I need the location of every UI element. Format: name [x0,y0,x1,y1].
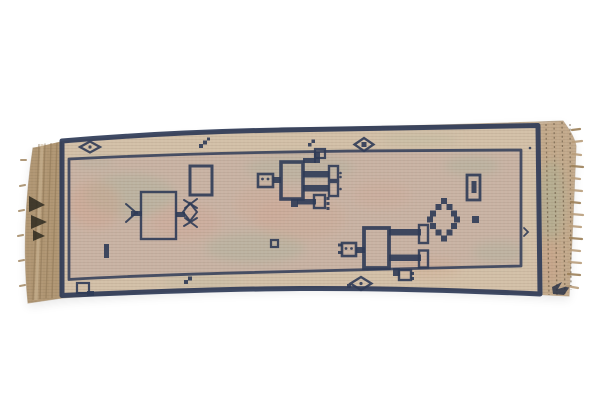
border-step [188,277,192,281]
border-dot [529,147,532,150]
fringe-strand [570,226,581,227]
diamond-square [436,204,442,210]
animal2-eye [345,247,348,250]
diamond-square [430,223,436,229]
diamond-square [441,236,447,242]
fringe-left [18,160,26,286]
fringe-strand [573,154,581,155]
fringe-strand [572,178,580,179]
fringe-strand [18,235,23,236]
border-diamond-center [362,142,367,147]
fringe-strand [572,166,583,167]
fringe-strand [569,262,581,263]
fringe-strand [570,238,582,239]
diamond-square [436,230,442,236]
weave-texture [25,121,576,303]
diamond-square [454,217,460,223]
small-square [472,216,479,223]
animal1-toe [339,176,342,179]
animal2-ear [338,251,342,254]
border-diamond-dot [88,145,91,148]
animal2-lower-arm [389,255,421,262]
animal1-toe [327,197,330,200]
animal2-toe [411,277,414,280]
border-step [308,143,312,147]
fringe-strand [571,214,583,215]
border-step [203,141,207,145]
fringe-strand [20,185,25,186]
border-step [312,140,316,144]
animal2-ear [338,244,342,247]
fringe-strand [19,210,24,211]
bar-inner [472,181,477,193]
fringe-strand [20,285,25,286]
diamond-square [447,230,453,236]
rug-photo [0,0,600,400]
fringe-strand [19,260,24,261]
animal2-eye [350,247,353,250]
border-diamond-dot [359,282,362,285]
vertical-dash [104,244,109,258]
diamond-square [451,211,457,217]
diamond-square [430,211,436,217]
animal1-upper-leg [303,171,329,178]
fringe-strand [572,129,580,130]
animal1-toe [327,207,330,210]
fringe-strand [570,250,580,251]
product-photo-canvas [0,0,600,400]
diamond-square [427,217,433,223]
border-diamond-tail [347,284,351,288]
animal1-toe [339,188,342,191]
border-step [199,144,203,148]
animal1-toe [339,172,342,175]
fringe-strand [568,274,580,275]
animal1-tail [291,199,298,207]
animal2-upper-arm [389,229,421,236]
border-step [207,138,210,141]
diamond-square [441,198,447,204]
animal2-toe [411,272,414,275]
fringe-strand [571,190,582,191]
animal1-toe [327,202,330,205]
animal1-eye [261,178,264,181]
border-hook-tail [87,291,94,296]
diamond-square [447,204,453,210]
animal1-lower-leg [303,185,329,192]
animal1-eye [267,178,270,181]
diamond-square [451,223,457,229]
border-step [184,280,188,284]
fringe-strand [571,202,580,203]
fringe-strand [573,141,582,142]
